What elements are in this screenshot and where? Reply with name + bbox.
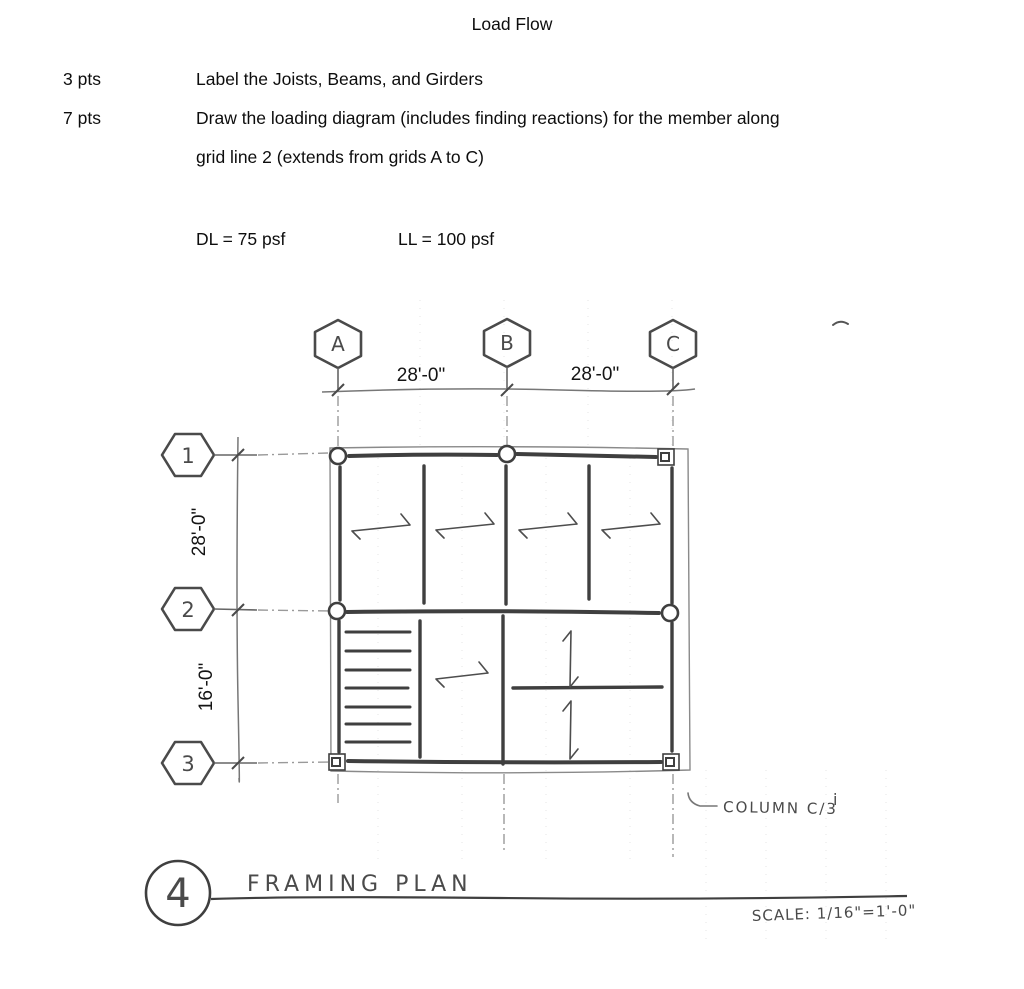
columns-round bbox=[329, 446, 678, 621]
grid-bubble-2: 2 bbox=[162, 588, 214, 630]
span-arrow-7 bbox=[563, 701, 578, 759]
beam-mid-bc-23 bbox=[513, 687, 662, 688]
column-c1-inner bbox=[661, 453, 669, 461]
grid-centerlines bbox=[258, 396, 673, 857]
drawing-scale: SCALE: 1/16"=1'-0" bbox=[752, 901, 917, 925]
dim-2-3: 16'-0" bbox=[196, 663, 217, 711]
scanned-homework-page: Load Flow 3 pts Label the Joists, Beams,… bbox=[0, 0, 1024, 989]
column-note: COLUMN C/3 bbox=[723, 798, 838, 818]
joists-group bbox=[346, 632, 410, 742]
column-c2 bbox=[662, 605, 678, 621]
grid-label-c: C bbox=[666, 332, 680, 356]
grid-bubble-c: C bbox=[650, 320, 696, 368]
dim-a-b: 28'-0" bbox=[397, 365, 445, 386]
girder-1-ab bbox=[349, 455, 497, 456]
scan-artifacts bbox=[378, 300, 886, 940]
grid-label-1: 1 bbox=[181, 444, 194, 468]
grid-label-2: 2 bbox=[181, 598, 194, 622]
dim-b-c: 28'-0" bbox=[571, 364, 619, 385]
stray-mark: i bbox=[833, 790, 837, 809]
span-arrow-1 bbox=[352, 514, 410, 539]
detail-number: 4 bbox=[165, 871, 190, 917]
grid-bubble-a: A bbox=[315, 320, 361, 368]
grid-bubble-b: B bbox=[484, 319, 530, 367]
span-arrow-2 bbox=[436, 513, 494, 538]
column-a3-inner bbox=[332, 758, 340, 766]
span-arrow-4 bbox=[602, 513, 660, 538]
pencil-smudge bbox=[833, 322, 848, 325]
column-a1 bbox=[330, 448, 346, 464]
column-note-leader bbox=[688, 793, 717, 806]
grid-bubble-stems bbox=[214, 367, 673, 763]
grid-bubble-3: 3 bbox=[162, 742, 214, 784]
drawing-title: FRAMING PLAN bbox=[247, 872, 473, 897]
framing-plan-sketch: A B C 1 2 3 bbox=[0, 0, 1024, 989]
span-arrow-3 bbox=[519, 513, 577, 538]
column-a2 bbox=[329, 603, 345, 619]
top-dimension-line bbox=[322, 383, 695, 396]
beams bbox=[339, 466, 672, 764]
girder-2-ac bbox=[347, 611, 659, 613]
grid-label-3: 3 bbox=[181, 752, 194, 776]
column-b1 bbox=[499, 446, 515, 462]
girder-1-bc bbox=[517, 454, 656, 457]
column-c3-inner bbox=[666, 758, 674, 766]
grid-label-a: A bbox=[331, 332, 345, 356]
grid-label-b: B bbox=[500, 331, 514, 355]
span-arrow-6 bbox=[563, 631, 578, 687]
dim-1-2: 28'-0" bbox=[189, 508, 210, 556]
grid-bubble-1: 1 bbox=[162, 434, 214, 476]
